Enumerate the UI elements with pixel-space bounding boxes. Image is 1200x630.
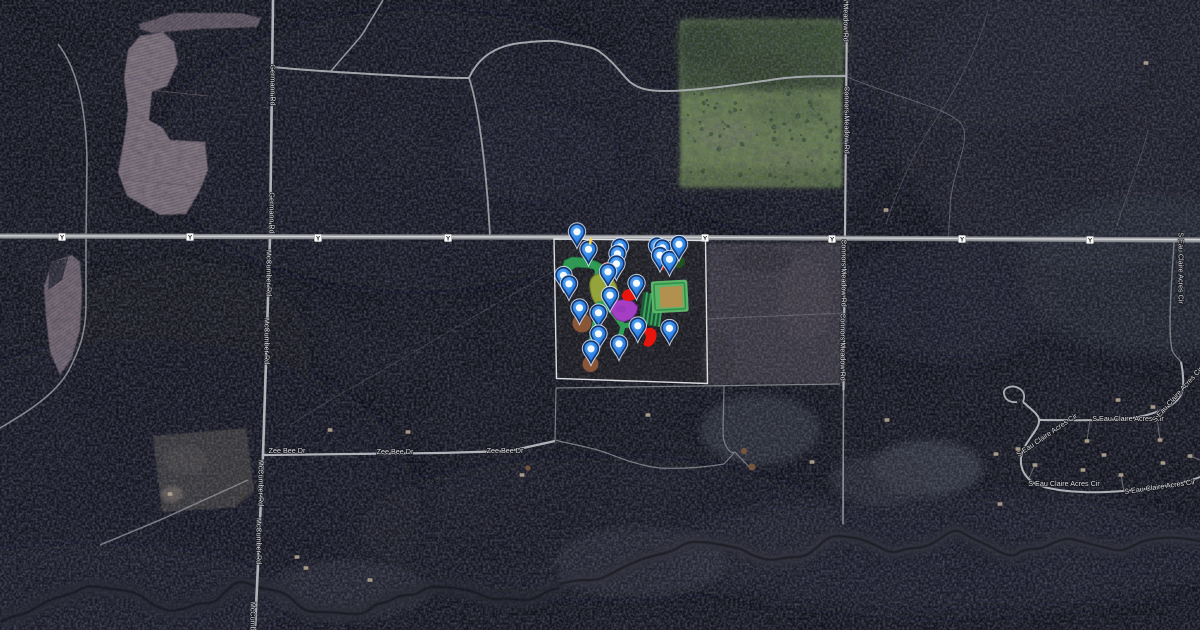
svg-text:Connors Meadow Rd: Connors Meadow Rd [843, 86, 852, 154]
svg-text:S Eau Claire Acres Cir: S Eau Claire Acres Cir [1028, 479, 1100, 488]
svg-text:S Eau Claire Acres Cir: S Eau Claire Acres Cir [1177, 232, 1186, 304]
svg-text:McCumber Rd: McCumber Rd [249, 602, 258, 630]
svg-text:Connors Meadow Rd: Connors Meadow Rd [842, 0, 851, 42]
svg-text:Germann Rd: Germann Rd [269, 64, 278, 105]
svg-text:Zee Bee Dr: Zee Bee Dr [377, 447, 414, 456]
svg-text:Germann Rd: Germann Rd [268, 192, 277, 233]
svg-text:McCumber Rd: McCumber Rd [255, 518, 264, 564]
svg-text:Zee Bee Dr: Zee Bee Dr [487, 446, 524, 455]
svg-text:McCumber Rd: McCumber Rd [263, 318, 272, 364]
svg-text:Connors Meadow Rd: Connors Meadow Rd [839, 313, 848, 381]
svg-text:McCumber Rd: McCumber Rd [265, 250, 274, 296]
svg-text:McCumber Rd: McCumber Rd [257, 460, 266, 506]
svg-text:Zee Bee Dr: Zee Bee Dr [269, 446, 306, 455]
svg-text:Connors Meadow Rd: Connors Meadow Rd [840, 239, 849, 307]
